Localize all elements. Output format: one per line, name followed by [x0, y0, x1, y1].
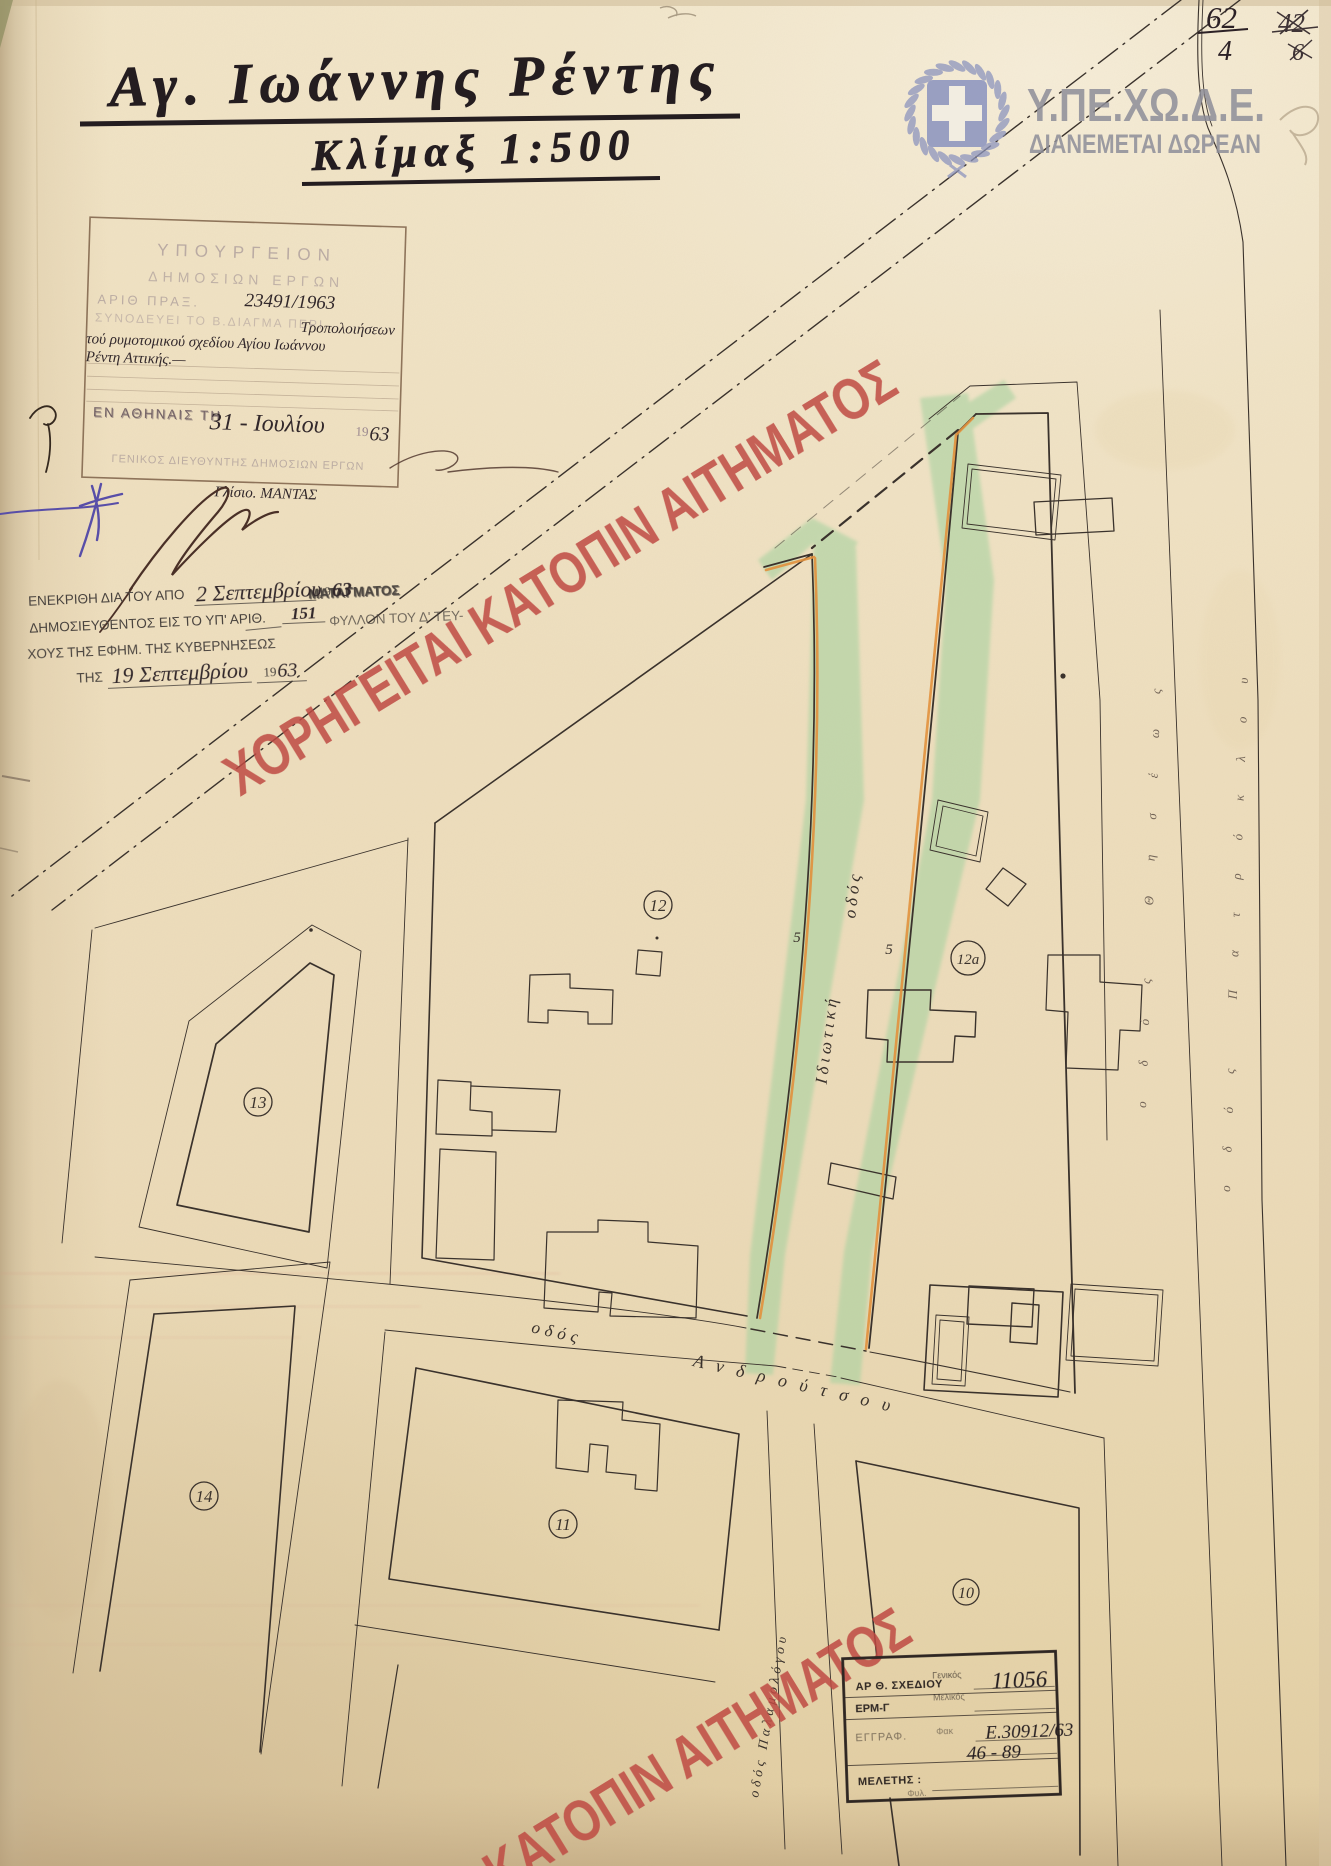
svg-text:Φακ: Φακ	[936, 1726, 954, 1737]
svg-text:42: 42	[1278, 8, 1305, 38]
svg-text:Γενικός: Γενικός	[932, 1670, 962, 1681]
svg-text:19: 19	[318, 584, 332, 600]
svg-text:Τροπολοιήσεων: Τροπολοιήσεων	[300, 320, 395, 339]
svg-text:19: 19	[263, 664, 277, 680]
svg-text:Μελικός: Μελικός	[933, 1691, 966, 1702]
svg-text:13: 13	[250, 1093, 267, 1112]
svg-text:ΕΓΓΡΑΦ.: ΕΓΓΡΑΦ.	[855, 1731, 907, 1745]
svg-text:4: 4	[1218, 36, 1232, 67]
svg-text:14: 14	[196, 1487, 214, 1506]
svg-text:63: 63	[369, 423, 390, 446]
svg-text:Υ.ΠΕ.ΧΩ.Δ.Ε.: Υ.ΠΕ.ΧΩ.Δ.Ε.	[1027, 79, 1265, 131]
svg-text:63: 63	[331, 579, 352, 602]
svg-text:19: 19	[355, 424, 368, 439]
svg-text:23491/1963: 23491/1963	[244, 290, 335, 314]
svg-text:11056: 11056	[991, 1667, 1048, 1694]
svg-text:ΜΕΛΕΤΗΣ :: ΜΕΛΕΤΗΣ :	[858, 1774, 922, 1788]
svg-text:12a: 12a	[957, 952, 980, 968]
svg-text:63: 63	[277, 659, 298, 682]
svg-text:Ε.30912/63: Ε.30912/63	[984, 1720, 1074, 1744]
svg-text:5: 5	[885, 942, 893, 958]
svg-text:Ρέντη Αττικής.—: Ρέντη Αττικής.—	[84, 349, 186, 368]
svg-text:46 - 89: 46 - 89	[967, 1742, 1022, 1765]
svg-text:Φυλ.: Φυλ.	[907, 1788, 926, 1799]
svg-text:31 - Ιουλίου: 31 - Ιουλίου	[208, 409, 325, 439]
svg-text:5: 5	[793, 930, 801, 946]
svg-text:11: 11	[555, 1515, 571, 1534]
svg-text:ΔΙΑΝΕΜΕΤΑΙ ΔΩΡΕΑΝ: ΔΙΑΝΕΜΕΤΑΙ ΔΩΡΕΑΝ	[1029, 129, 1261, 159]
svg-text:ΤΗΣ: ΤΗΣ	[76, 670, 103, 686]
svg-text:ΕΡΜ-Γ: ΕΡΜ-Γ	[855, 1702, 890, 1715]
svg-text:151: 151	[291, 603, 317, 623]
svg-text:12: 12	[650, 896, 668, 915]
svg-text:10: 10	[958, 1585, 974, 1602]
